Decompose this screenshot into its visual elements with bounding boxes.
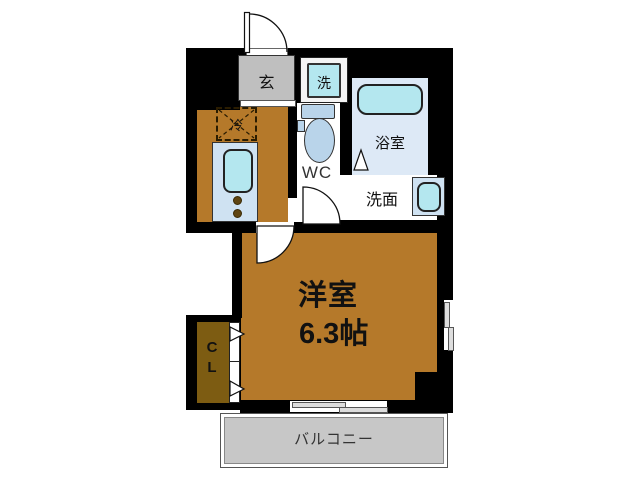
wall-segment bbox=[288, 100, 297, 198]
wc-label: WC bbox=[294, 163, 340, 183]
closet-folding-door bbox=[229, 322, 240, 403]
closet-label: CL bbox=[204, 338, 220, 378]
bathtub bbox=[357, 84, 423, 115]
main-room-label: 洋室 bbox=[298, 272, 358, 314]
main-room-floor-lower bbox=[240, 373, 415, 403]
kitchen-sink bbox=[223, 149, 253, 193]
refrigerator-label: 冷 bbox=[216, 115, 257, 134]
wall-segment bbox=[232, 233, 242, 318]
entrance-door-leaf bbox=[245, 13, 250, 53]
entrance-label: 玄 bbox=[238, 69, 295, 93]
wall-segment bbox=[415, 372, 453, 413]
wall-segment bbox=[186, 48, 240, 110]
balcony-window-pane bbox=[339, 407, 388, 413]
balcony-label: バルコニー bbox=[220, 428, 448, 449]
room-door-opening bbox=[256, 222, 294, 233]
washer-label: 洗 bbox=[307, 73, 341, 93]
wall-segment bbox=[186, 222, 257, 233]
entrance-door-swing bbox=[250, 14, 287, 52]
stove-burner bbox=[233, 196, 242, 205]
closet-folding-door-divider bbox=[229, 361, 240, 362]
washbasin bbox=[417, 182, 441, 212]
floor-plan: 玄 洗 浴室 WC 洗面 冷 洋室 6.3帖 CL バルコニー bbox=[0, 0, 640, 480]
entrance-step bbox=[240, 100, 296, 107]
stove-burner bbox=[233, 209, 242, 218]
wall-segment bbox=[293, 222, 320, 233]
wall-segment bbox=[320, 220, 453, 233]
main-room-size: 6.3帖 bbox=[299, 310, 368, 352]
toilet-tank bbox=[301, 104, 335, 119]
bathroom-label: 浴室 bbox=[352, 132, 428, 153]
wall-segment bbox=[186, 103, 197, 233]
toilet-bowl bbox=[304, 118, 335, 163]
toilet-handle bbox=[297, 120, 305, 132]
wall-segment bbox=[428, 78, 453, 175]
balcony-window-pane bbox=[292, 402, 346, 408]
side-window-pane bbox=[444, 302, 450, 328]
washroom-label: 洗面 bbox=[356, 186, 408, 210]
side-window-pane bbox=[448, 327, 454, 351]
